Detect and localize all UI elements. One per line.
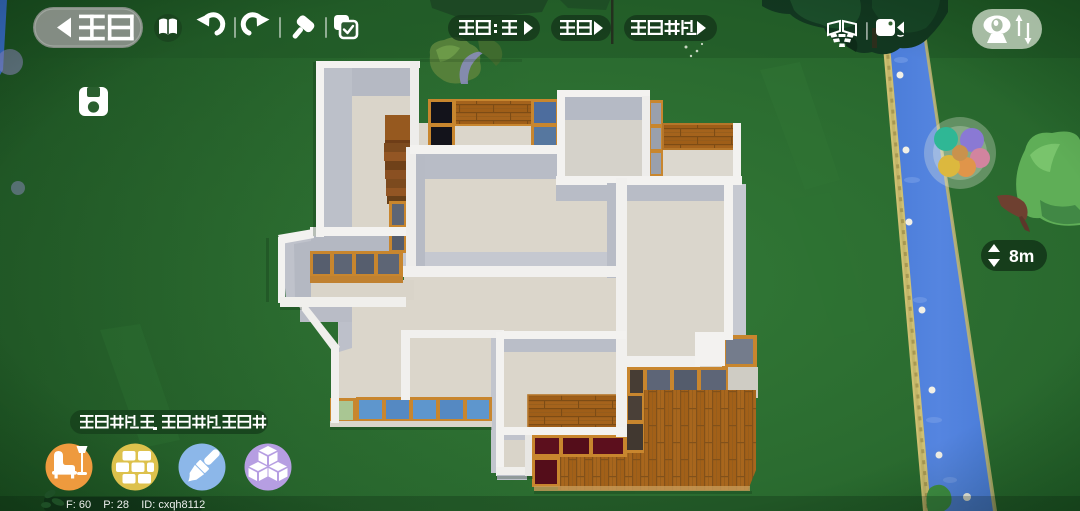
- svg-text:8m: 8m: [1009, 246, 1034, 266]
- svg-text:F: 60 P: 28 ID: cxqh8112: F: 60 P: 28 ID: cxqh8112: [66, 499, 205, 511]
